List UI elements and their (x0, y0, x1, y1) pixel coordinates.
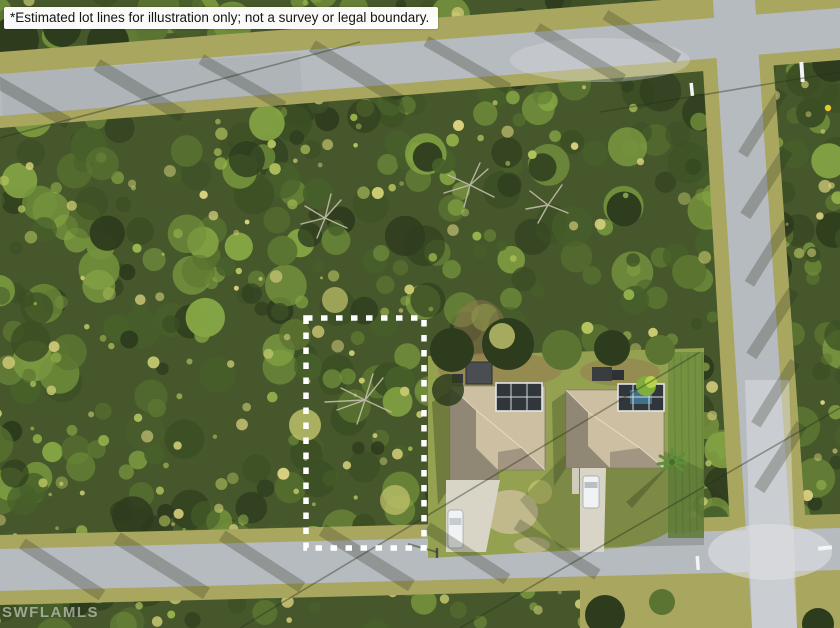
home-parcels (408, 300, 704, 558)
backyard-vehicle (592, 367, 612, 381)
mls-watermark: SWFLAMLS (2, 604, 99, 621)
van-right-driveway (583, 476, 599, 508)
street-sign-marker (825, 105, 831, 111)
disclaimer-text: *Estimated lot lines for illustration on… (10, 10, 429, 25)
scene-svg (0, 0, 840, 628)
backyard-shed (466, 362, 492, 384)
stop-bar-top (689, 83, 694, 96)
disclaimer-banner: *Estimated lot lines for illustration on… (4, 7, 438, 29)
aerial-photo: *Estimated lot lines for illustration on… (0, 0, 840, 628)
